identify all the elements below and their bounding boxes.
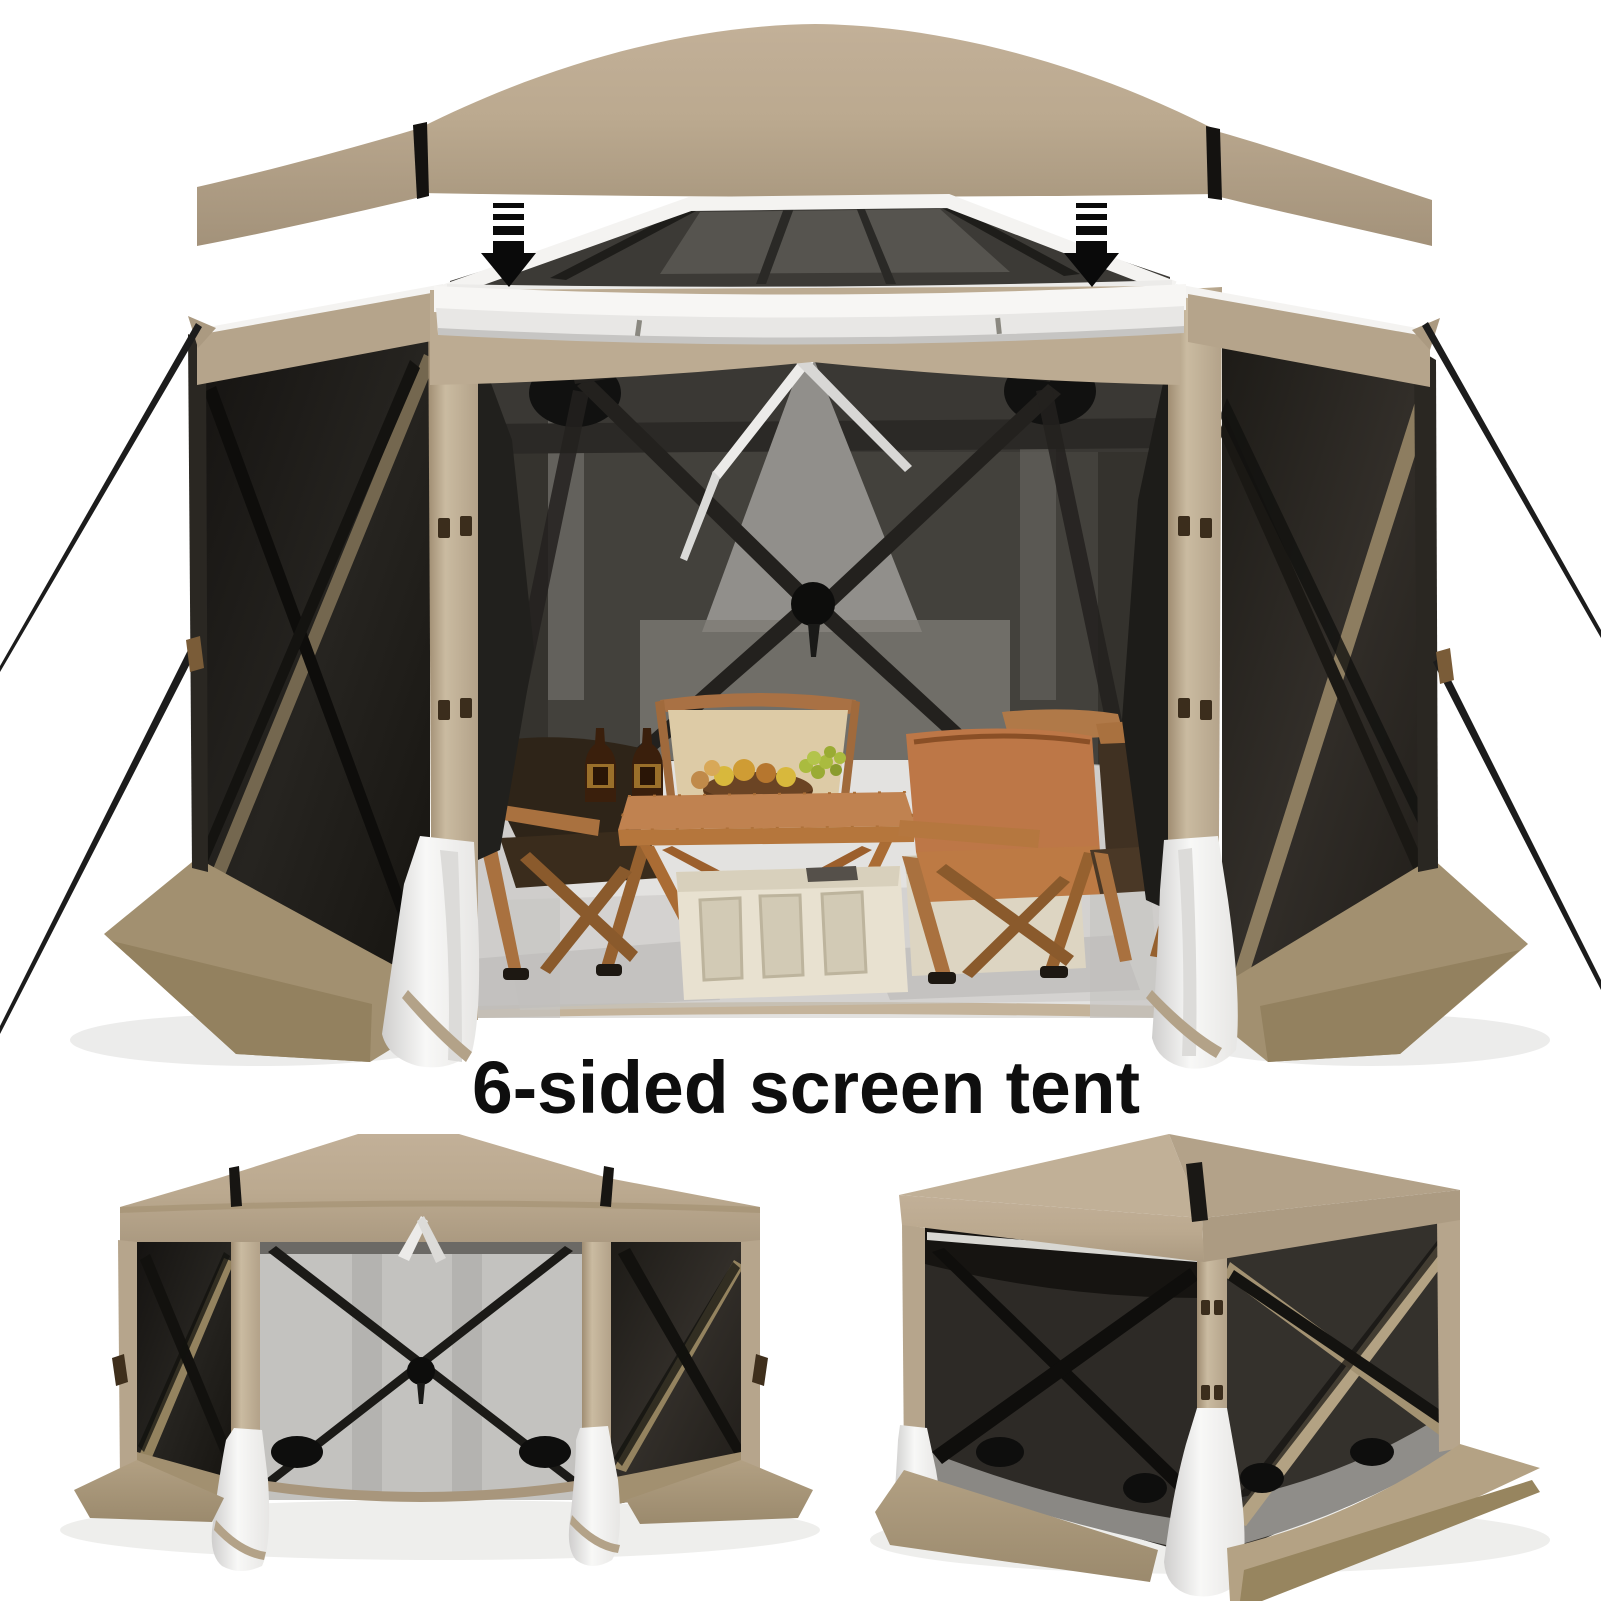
svg-text:6-sided screen tent: 6-sided screen tent [472,1046,1140,1129]
